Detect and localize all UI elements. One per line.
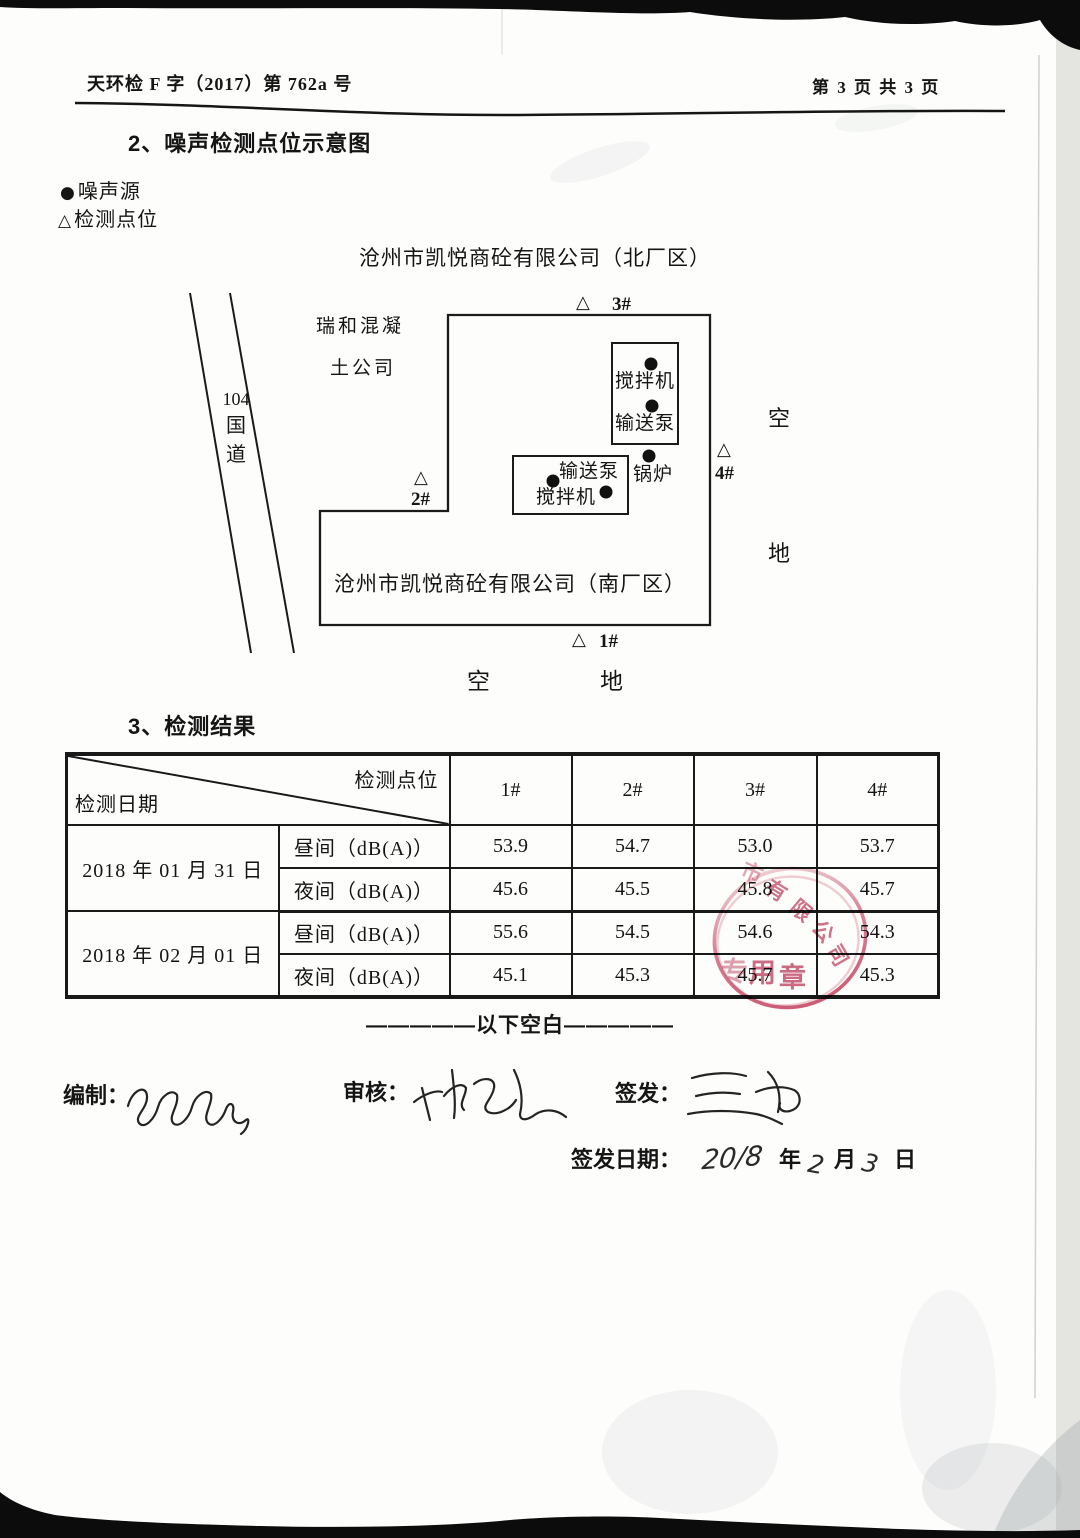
section2-title: 2、噪声检测点位示意图 <box>128 131 371 156</box>
red-seal-stamp: 市 有 限 公 司 专 用 章 <box>700 845 890 1025</box>
road-number: 104 <box>216 389 256 410</box>
issued-signature <box>688 1072 800 1124</box>
boxA-pump-label: 输送泵 <box>613 413 677 435</box>
prepared-label: 编制： <box>63 1083 129 1108</box>
period-cell: 昼间（dB(A)） <box>279 825 450 868</box>
boiler-label: 锅炉 <box>633 464 673 486</box>
point3-label: 3# <box>612 294 631 316</box>
scanned-report-page: 天环检 F 字（2017）第 762a 号 第 3 页 共 3 页 2、噪声检测… <box>0 0 1080 1538</box>
road-label: 104 国 道 <box>216 389 256 467</box>
boxB-mixer-label: 搅拌机 <box>536 487 596 509</box>
handwritten-month: 2 <box>806 1150 827 1181</box>
value-cell: 54.7 <box>572 825 694 868</box>
value-cell: 45.6 <box>450 868 572 911</box>
col-header-1: 1# <box>450 754 572 825</box>
issued-label: 签发： <box>615 1081 681 1106</box>
legend-monitor-point-label: 检测点位 <box>74 209 158 231</box>
noise-source-dot <box>643 450 656 463</box>
road-line-left <box>190 293 251 653</box>
prepared-signature <box>128 1090 248 1134</box>
reviewed-label: 审核： <box>343 1080 409 1105</box>
open-land-right-char2: 地 <box>768 541 791 566</box>
seal-bottom-char: 专 <box>721 950 748 989</box>
seal-bottom-char: 章 <box>779 956 806 995</box>
seal-ring <box>700 845 890 1025</box>
point2-label: 2# <box>411 489 430 511</box>
value-cell: 45.3 <box>572 954 694 997</box>
corner-label-date: 检测日期 <box>75 788 159 817</box>
period-cell: 昼间（dB(A)） <box>279 911 450 954</box>
col-header-3: 3# <box>694 754 817 825</box>
road-char2: 道 <box>216 444 256 467</box>
monitor-point-icon: △ <box>58 211 72 231</box>
point3-triangle-icon: △ <box>576 292 590 313</box>
col-header-2: 2# <box>572 754 694 825</box>
neighbor-company-line1: 瑞和混凝 <box>316 316 404 338</box>
legend-monitor-point: △检测点位 <box>58 209 158 232</box>
point4-triangle-icon: △ <box>717 439 731 460</box>
seal-bottom-char: 用 <box>749 951 776 990</box>
south-factory-label: 沧州市凯悦商砼有限公司（南厂区） <box>325 572 695 596</box>
day-char: 日 <box>894 1147 916 1172</box>
month-char: 月 <box>834 1147 856 1172</box>
col-header-4: 4# <box>817 754 939 825</box>
page-indicator: 第 3 页 共 3 页 <box>812 78 940 98</box>
point2-triangle-icon: △ <box>414 467 428 488</box>
doc-number: 天环检 F 字（2017）第 762a 号 <box>87 74 352 95</box>
open-land-bottom-char2: 地 <box>600 669 624 695</box>
table-corner-cell: 检测点位 检测日期 <box>67 754 450 825</box>
noise-source-icon: ● <box>60 183 76 203</box>
noise-source-dot <box>645 358 658 371</box>
boxB-pump-label: 输送泵 <box>559 461 619 483</box>
handwritten-year: 20/8 <box>700 1141 764 1177</box>
reviewed-signature <box>414 1070 566 1120</box>
date-cell: 2018 年 01 月 31 日 <box>67 825 279 911</box>
value-cell: 45.5 <box>572 868 694 911</box>
point4-label: 4# <box>715 463 734 485</box>
period-cell: 夜间（dB(A)） <box>279 954 450 997</box>
date-cell: 2018 年 02 月 01 日 <box>67 911 279 997</box>
value-cell: 53.9 <box>450 825 572 868</box>
noise-source-dot <box>547 475 560 488</box>
value-cell: 45.1 <box>450 954 572 997</box>
issue-date-label: 签发日期： <box>571 1147 681 1172</box>
legend-noise-source: ●噪声源 <box>60 181 141 204</box>
road-char1: 国 <box>216 415 256 438</box>
section3-title: 3、检测结果 <box>128 714 256 739</box>
boxA-mixer-label: 搅拌机 <box>613 371 677 393</box>
noise-source-dot <box>646 400 659 413</box>
blank-below-note: —————以下空白————— <box>320 1014 720 1038</box>
noise-source-dot <box>600 486 613 499</box>
road-line-right <box>230 293 294 653</box>
open-land-right-char1: 空 <box>768 406 791 431</box>
legend-noise-source-label: 噪声源 <box>78 181 141 203</box>
handwritten-day: 3 <box>859 1149 881 1180</box>
period-cell: 夜间（dB(A)） <box>279 868 450 911</box>
neighbor-company-line2: 土公司 <box>330 358 396 380</box>
point1-triangle-icon: △ <box>572 629 586 650</box>
year-char: 年 <box>779 1147 801 1172</box>
open-land-bottom-char1: 空 <box>467 669 491 695</box>
value-cell: 55.6 <box>450 911 572 954</box>
value-cell: 54.5 <box>572 911 694 954</box>
corner-label-points: 检测点位 <box>355 764 439 793</box>
point1-label: 1# <box>599 631 618 653</box>
north-factory-title: 沧州市凯悦商砼有限公司（北厂区） <box>345 246 725 270</box>
